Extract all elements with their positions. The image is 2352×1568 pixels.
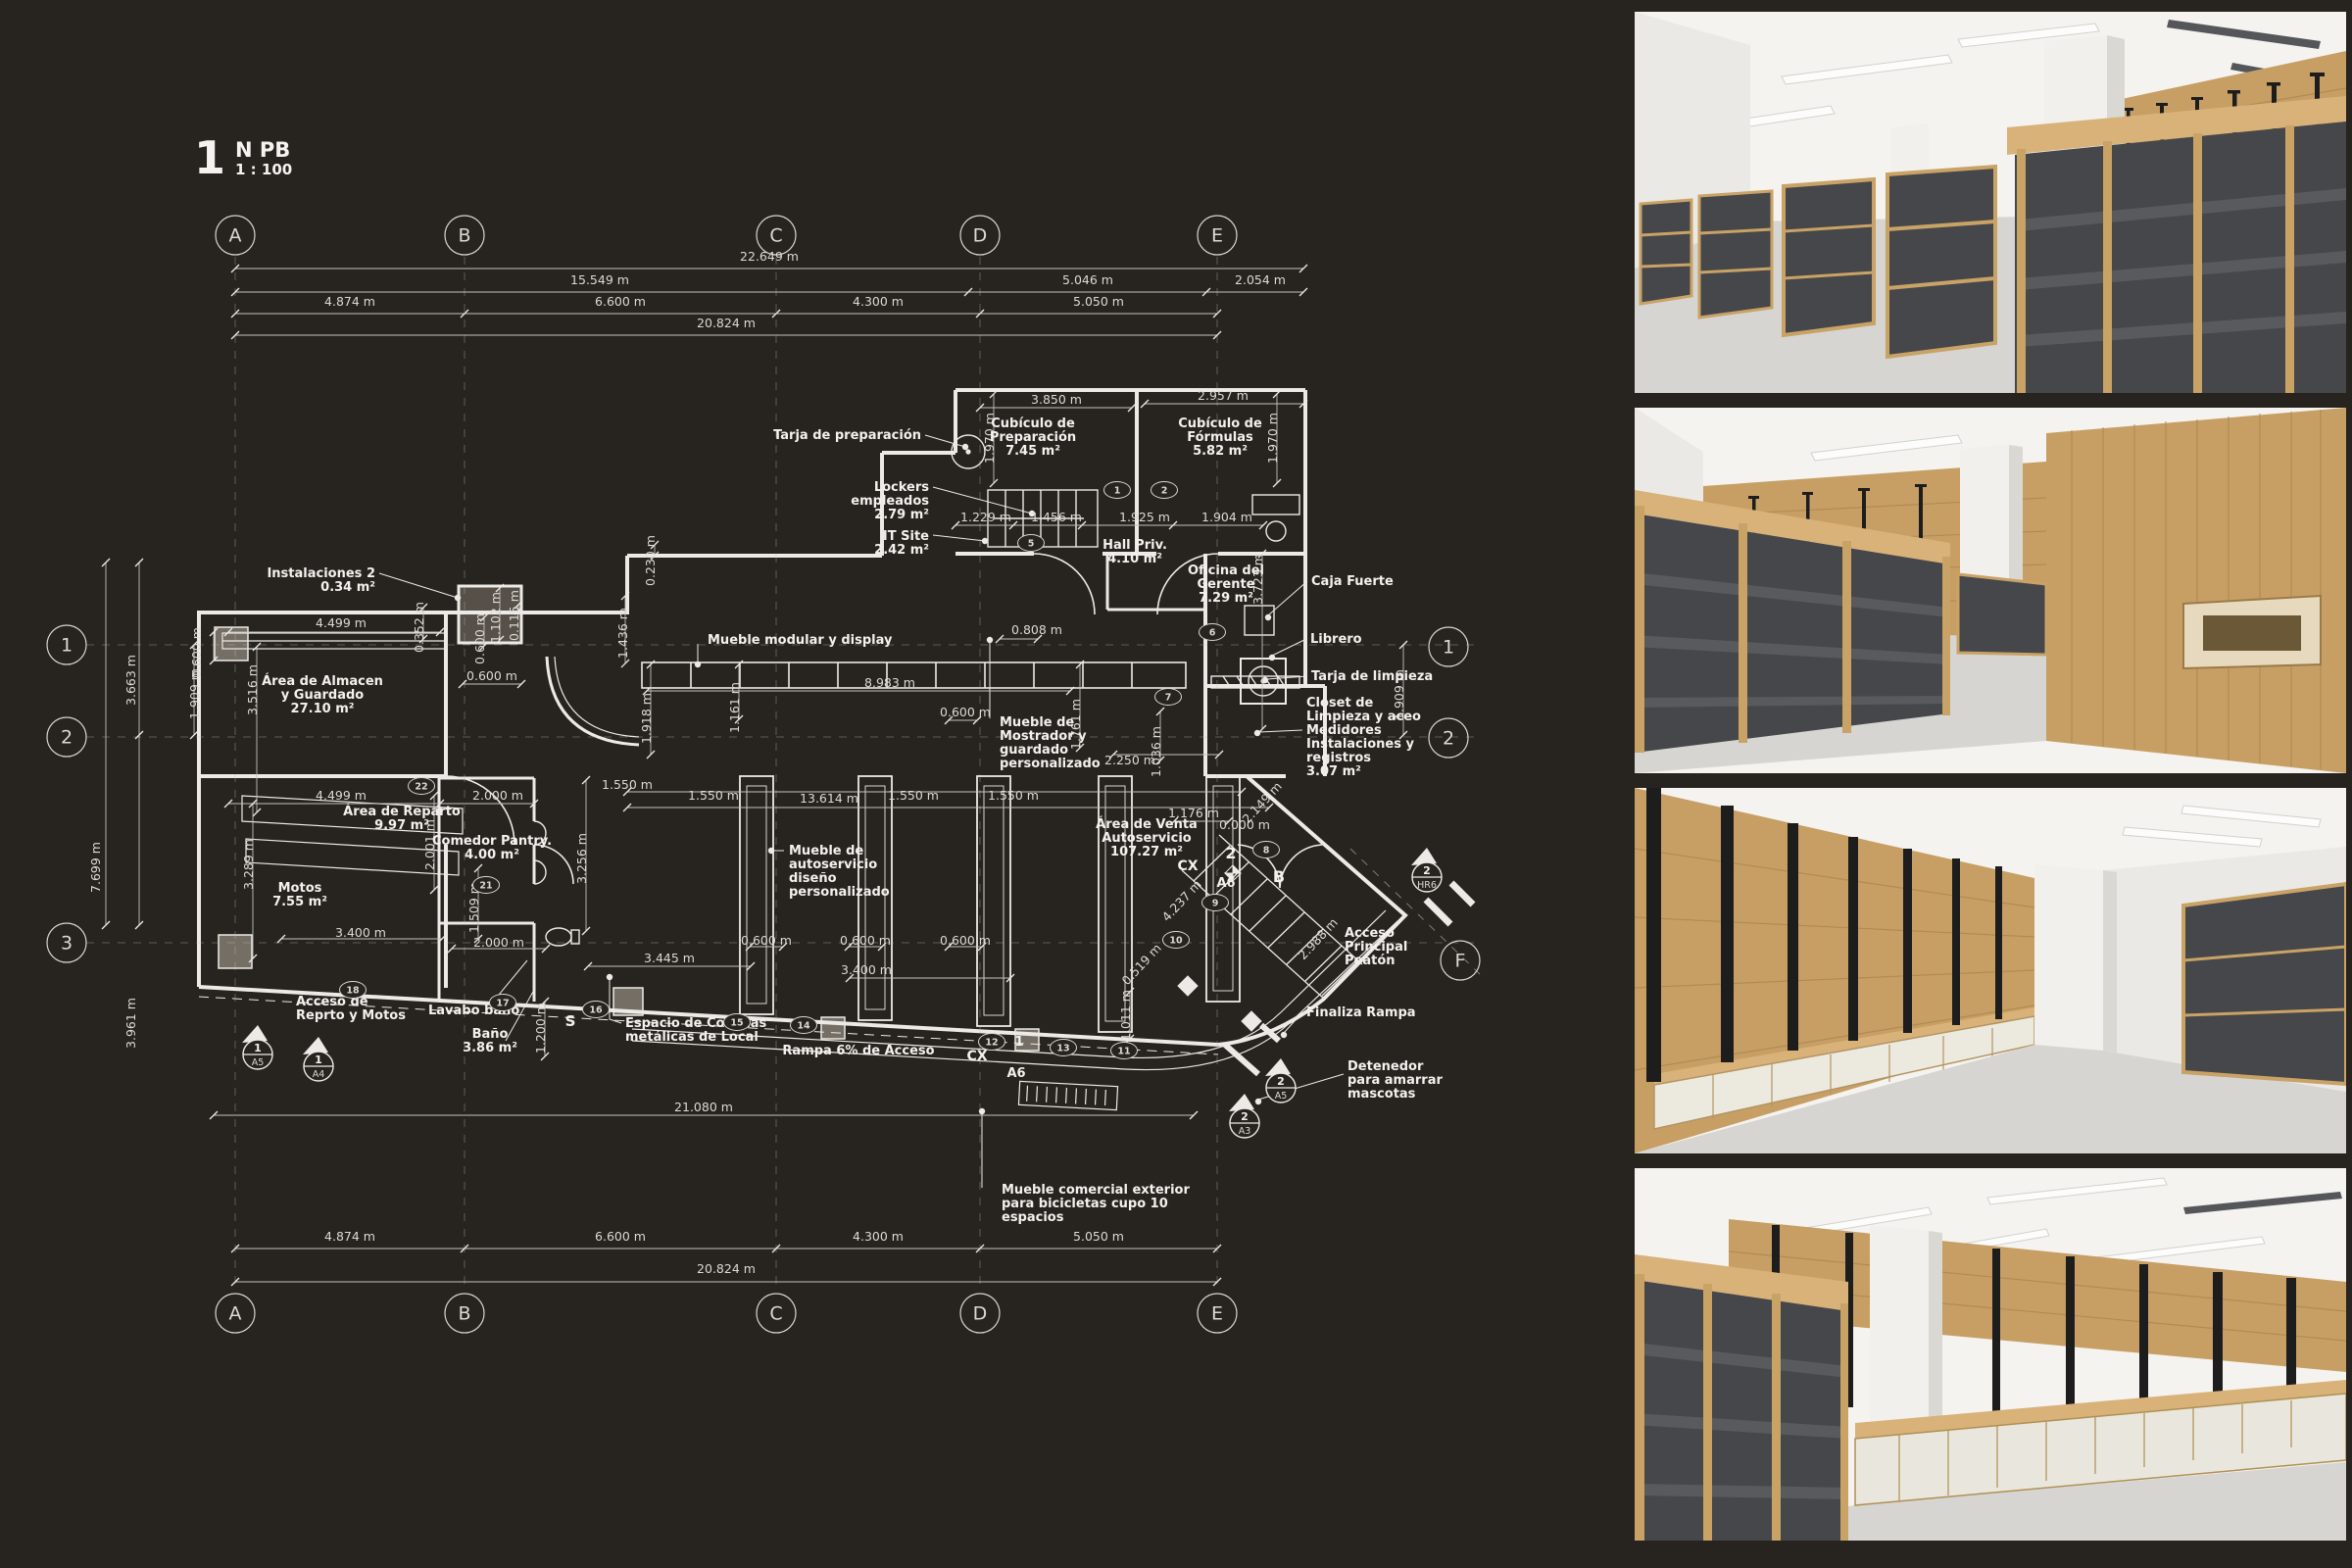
plan-label: Librero bbox=[1310, 632, 1362, 647]
render-display-corridor bbox=[1635, 788, 2346, 1153]
dimension-label: 1.550 m bbox=[602, 777, 653, 792]
keynote-tag: 2 bbox=[1151, 482, 1178, 499]
dimension-label: 3.663 m bbox=[123, 655, 138, 706]
grid-bubble: 1 bbox=[1429, 627, 1468, 666]
plan-label: Motos7.55 m² bbox=[272, 881, 327, 909]
svg-text:16: 16 bbox=[589, 1005, 603, 1016]
plan-label: Hall Priv.4.10 m² bbox=[1102, 538, 1167, 566]
svg-text:A4: A4 bbox=[313, 1069, 325, 1080]
dimension-label: 7.699 m bbox=[88, 842, 103, 893]
keynote-tag: 14 bbox=[791, 1017, 817, 1034]
dimension-label: 2.054 m bbox=[1235, 272, 1286, 287]
dimension-label: 4.300 m bbox=[853, 294, 904, 309]
plan-label: Oficina delGerente7.29 m² bbox=[1188, 563, 1264, 606]
plan-label: IT Site2.42 m² bbox=[874, 529, 929, 558]
svg-text:HR6: HR6 bbox=[1417, 880, 1437, 891]
keynote-tag: 10 bbox=[1163, 932, 1190, 949]
dimension-label: 0.352 m bbox=[412, 602, 426, 653]
svg-text:18: 18 bbox=[346, 986, 360, 997]
svg-text:B: B bbox=[458, 1303, 470, 1325]
svg-text:1: 1 bbox=[1443, 637, 1454, 659]
grid-bubble: B bbox=[445, 1294, 484, 1333]
svg-text:A: A bbox=[229, 1303, 242, 1325]
dimension-label: 3.961 m bbox=[123, 998, 138, 1049]
dimension-label: 15.549 m bbox=[570, 272, 629, 287]
plan-label: Tarja de limpieza bbox=[1311, 669, 1433, 684]
svg-text:A5: A5 bbox=[1275, 1091, 1288, 1102]
walls-layer bbox=[199, 390, 1482, 1188]
dimension-label: 3.400 m bbox=[335, 925, 386, 940]
svg-text:11: 11 bbox=[1117, 1047, 1130, 1057]
dimension-label: 0.230 m bbox=[643, 535, 658, 586]
plan-label: CX bbox=[966, 1049, 987, 1064]
grid-bubble: F bbox=[1441, 941, 1480, 980]
dimension-label: 3.400 m bbox=[841, 962, 892, 977]
dimension-label: 5.050 m bbox=[1073, 294, 1124, 309]
plan-label: Cubículo dePreparación7.45 m² bbox=[990, 416, 1076, 459]
wood-volume bbox=[2046, 408, 2346, 773]
grid-bubble: 2 bbox=[47, 717, 86, 757]
svg-text:8: 8 bbox=[1263, 846, 1270, 857]
svg-text:17: 17 bbox=[496, 999, 509, 1009]
svg-text:6: 6 bbox=[1209, 628, 1216, 639]
keynote-tag: 13 bbox=[1051, 1040, 1077, 1056]
grid-bubble: D bbox=[960, 216, 1000, 255]
drawing-title-block: 1 N PB 1 : 100 bbox=[194, 135, 292, 180]
svg-text:C: C bbox=[769, 1303, 782, 1325]
plan-label: 2 bbox=[1225, 844, 1236, 862]
dimension-label: 1.904 m bbox=[1201, 510, 1252, 524]
dimension-label: 2.000 m bbox=[473, 935, 524, 950]
dimension-label: 4.874 m bbox=[324, 294, 375, 309]
drawing-name: N PB bbox=[235, 139, 292, 161]
dimension-label: 4.499 m bbox=[316, 788, 367, 803]
svg-text:1: 1 bbox=[315, 1053, 322, 1066]
svg-text:13: 13 bbox=[1056, 1044, 1069, 1054]
pillar bbox=[1870, 1225, 1929, 1435]
dimension-label: 1.436 m bbox=[615, 608, 630, 659]
keynote-tag: 22 bbox=[409, 778, 435, 795]
svg-text:E: E bbox=[1211, 1303, 1223, 1325]
plan-label: S bbox=[565, 1012, 576, 1030]
plan-label: 1 bbox=[1014, 1035, 1023, 1050]
dimension-label: 3.256 m bbox=[574, 833, 589, 884]
grid-bubble: 3 bbox=[47, 923, 86, 962]
keynote-tag: 5 bbox=[1018, 535, 1045, 552]
plan-label: Lockersempleados2.79 m² bbox=[851, 480, 929, 522]
pillar bbox=[2034, 864, 2103, 1051]
keynote-tag: 8 bbox=[1253, 842, 1280, 858]
svg-text:2: 2 bbox=[1241, 1110, 1249, 1123]
plan-label: Instalaciones 20.34 m² bbox=[267, 566, 375, 595]
svg-text:14: 14 bbox=[797, 1021, 810, 1032]
grid-bubble: B bbox=[445, 216, 484, 255]
shelving-foreground bbox=[2007, 96, 2346, 393]
dimension-label: 4.499 m bbox=[316, 615, 367, 630]
svg-text:7: 7 bbox=[1165, 693, 1172, 704]
plan-label: Tarja de preparación bbox=[773, 428, 921, 443]
shelving-foreground bbox=[1635, 1254, 1848, 1541]
svg-text:9: 9 bbox=[1212, 899, 1219, 909]
keynote-tag: 7 bbox=[1155, 689, 1182, 706]
dimension-label: 0.600 m bbox=[840, 933, 891, 948]
dimension-label: 4.300 m bbox=[853, 1229, 904, 1244]
dimension-label: 1.036 m bbox=[1149, 726, 1163, 777]
drawing-number: 1 bbox=[194, 135, 225, 180]
dimension-label: 0.600 m bbox=[466, 668, 517, 683]
section-marker: 2HR6 bbox=[1411, 848, 1442, 892]
plan-label: Rampa 6% de Acceso bbox=[782, 1044, 934, 1058]
svg-text:22: 22 bbox=[415, 782, 427, 793]
dimension-label: 3.850 m bbox=[1031, 392, 1082, 407]
dimension-label: 5.050 m bbox=[1073, 1229, 1124, 1244]
grid-bubble: C bbox=[757, 1294, 796, 1333]
dimension-label: 1.925 m bbox=[1119, 510, 1170, 524]
dimension-label: 1.550 m bbox=[888, 788, 939, 803]
grid-bubble: 1 bbox=[47, 625, 86, 664]
wood-counter-niche bbox=[2183, 596, 2321, 668]
dimension-label: 0.600 m bbox=[741, 933, 792, 948]
dimension-label: 1.550 m bbox=[688, 788, 739, 803]
grid-bubble: E bbox=[1198, 1294, 1237, 1333]
svg-text:2: 2 bbox=[1161, 486, 1168, 497]
section-marker: 2A5 bbox=[1265, 1058, 1296, 1102]
dimension-label: 1.550 m bbox=[988, 788, 1039, 803]
keynote-tag: 9 bbox=[1202, 895, 1229, 911]
dimension-label: 0.600 m bbox=[940, 705, 991, 719]
plan-label: Cubículo deFórmulas5.82 m² bbox=[1178, 416, 1262, 459]
grid-bubble: D bbox=[960, 1294, 1000, 1333]
grid-bubble: A bbox=[216, 1294, 255, 1333]
render-display-cases-row bbox=[1635, 1168, 2346, 1541]
svg-text:12: 12 bbox=[985, 1038, 998, 1049]
svg-text:A5: A5 bbox=[252, 1057, 265, 1068]
dimension-label: 0.600 m bbox=[940, 933, 991, 948]
svg-text:D: D bbox=[973, 225, 988, 247]
dimension-label: 1.102 m bbox=[488, 592, 503, 643]
plan-label: Mueble modular y display bbox=[708, 633, 893, 648]
keynote-tag: 6 bbox=[1200, 624, 1226, 641]
svg-text:10: 10 bbox=[1169, 936, 1183, 947]
render-shelving-rows bbox=[1635, 12, 2346, 393]
keynote-tag: 12 bbox=[979, 1034, 1005, 1051]
svg-text:2: 2 bbox=[1277, 1075, 1285, 1088]
dimension-label: 20.824 m bbox=[697, 1261, 756, 1276]
keynote-tag: 1 bbox=[1104, 482, 1131, 499]
section-marker: 1A4 bbox=[303, 1037, 333, 1081]
svg-text:1: 1 bbox=[1114, 486, 1121, 497]
svg-text:2: 2 bbox=[61, 727, 73, 749]
svg-text:E: E bbox=[1211, 225, 1223, 247]
plan-label: Mueble deMostrador yguardadopersonalizad… bbox=[1000, 715, 1101, 771]
dimension-label: 4.237 m bbox=[1159, 877, 1204, 924]
plan-label: CX bbox=[1177, 858, 1198, 874]
dimension-label: 0.808 m bbox=[1011, 622, 1062, 637]
section-marker: 2A3 bbox=[1229, 1094, 1259, 1138]
svg-text:21: 21 bbox=[479, 881, 492, 892]
plan-label: Mueble deautoserviciodiseñopersonalizado bbox=[789, 844, 890, 900]
dimension-label: 0.519 m bbox=[1119, 941, 1164, 988]
plan-label: Área de VentaAutoservicio107.27 m² bbox=[1096, 816, 1198, 859]
dimension-label: 2.957 m bbox=[1198, 388, 1249, 403]
dimension-label: 21.080 m bbox=[674, 1100, 733, 1114]
svg-text:3: 3 bbox=[61, 933, 73, 955]
plan-label: Detenedorpara amarrarmascotas bbox=[1347, 1059, 1443, 1102]
keynote-tag: 17 bbox=[490, 995, 516, 1011]
svg-text:A: A bbox=[229, 225, 242, 247]
plan-label: Caja Fuerte bbox=[1311, 574, 1394, 589]
dimension-label: 1.161 m bbox=[727, 682, 742, 733]
svg-text:B: B bbox=[458, 225, 470, 247]
dimension-label: 1.011 m bbox=[1118, 990, 1133, 1041]
plan-label: A6 bbox=[1216, 876, 1235, 891]
dimension-label: 8.983 m bbox=[864, 675, 915, 690]
svg-text:1: 1 bbox=[254, 1042, 262, 1054]
dimension-label: 3.289 m bbox=[241, 839, 256, 890]
svg-text:2: 2 bbox=[1443, 728, 1454, 750]
grid-bubble: E bbox=[1198, 216, 1237, 255]
dimension-label: 2.000 m bbox=[472, 788, 523, 803]
dimension-label: 1.456 m bbox=[1031, 510, 1082, 524]
sheet: ABCDEABCDE12312F22.649 m15.549 m5.046 m2… bbox=[0, 0, 2352, 1568]
svg-text:15: 15 bbox=[730, 1018, 743, 1029]
plan-label: Finaliza Rampa bbox=[1306, 1005, 1416, 1020]
dimension-label: 1.970 m bbox=[1265, 413, 1280, 464]
svg-text:2: 2 bbox=[1423, 864, 1431, 877]
plan-label: A6 bbox=[1006, 1066, 1025, 1081]
grid-bubble: 2 bbox=[1429, 718, 1468, 758]
dimension-label: 1.909 m bbox=[187, 668, 202, 719]
dimension-label: 20.824 m bbox=[697, 316, 756, 330]
plan-label: Baño3.86 m² bbox=[463, 1027, 517, 1055]
shelving-unit bbox=[2183, 884, 2346, 1084]
dimension-label: 6.600 m bbox=[595, 294, 646, 309]
svg-text:5: 5 bbox=[1028, 539, 1035, 550]
keynote-tag: 11 bbox=[1111, 1043, 1138, 1059]
keynote-tag: 15 bbox=[724, 1014, 751, 1031]
svg-text:F: F bbox=[1455, 951, 1466, 972]
keynote-tag: 16 bbox=[583, 1002, 610, 1018]
dimension-label: 1.918 m bbox=[639, 693, 654, 744]
dimension-label: 13.614 m bbox=[800, 791, 858, 806]
keynote-tag: 21 bbox=[473, 877, 500, 894]
plan-label: AccesoPrincipalPeatón bbox=[1345, 926, 1407, 968]
dimension-label: 1.229 m bbox=[960, 510, 1011, 524]
dimension-label: 0.600 m bbox=[472, 613, 487, 664]
dimension-label: 3.516 m bbox=[245, 664, 260, 715]
plan-label: Mueble comercial exteriorpara bicicletas… bbox=[1002, 1183, 1190, 1225]
svg-text:D: D bbox=[973, 1303, 988, 1325]
floor-plan-drawing: ABCDEABCDE12312F22.649 m15.549 m5.046 m2… bbox=[0, 0, 1622, 1568]
svg-text:A3: A3 bbox=[1239, 1126, 1251, 1137]
dimension-label: 4.874 m bbox=[324, 1229, 375, 1244]
dimension-label: 22.649 m bbox=[740, 249, 799, 264]
plan-label: B bbox=[1273, 867, 1285, 886]
svg-text:1: 1 bbox=[61, 635, 73, 657]
dimension-label: 5.046 m bbox=[1062, 272, 1113, 287]
svg-text:C: C bbox=[769, 225, 782, 247]
dimension-label: 3.445 m bbox=[644, 951, 695, 965]
dimension-label: 1.200 m bbox=[533, 1003, 548, 1053]
dimension-label: 0.115 m bbox=[507, 590, 521, 641]
keynote-tag: 18 bbox=[340, 982, 367, 999]
dimension-label: 6.600 m bbox=[595, 1229, 646, 1244]
drawing-scale: 1 : 100 bbox=[235, 161, 292, 178]
section-marker: 1A5 bbox=[242, 1025, 272, 1069]
render-wood-wall-room bbox=[1635, 408, 2346, 773]
plan-label: Área de Almaceny Guardado27.10 m² bbox=[262, 673, 383, 716]
shelving-islands bbox=[740, 776, 1240, 1032]
grid-bubble: A bbox=[216, 216, 255, 255]
